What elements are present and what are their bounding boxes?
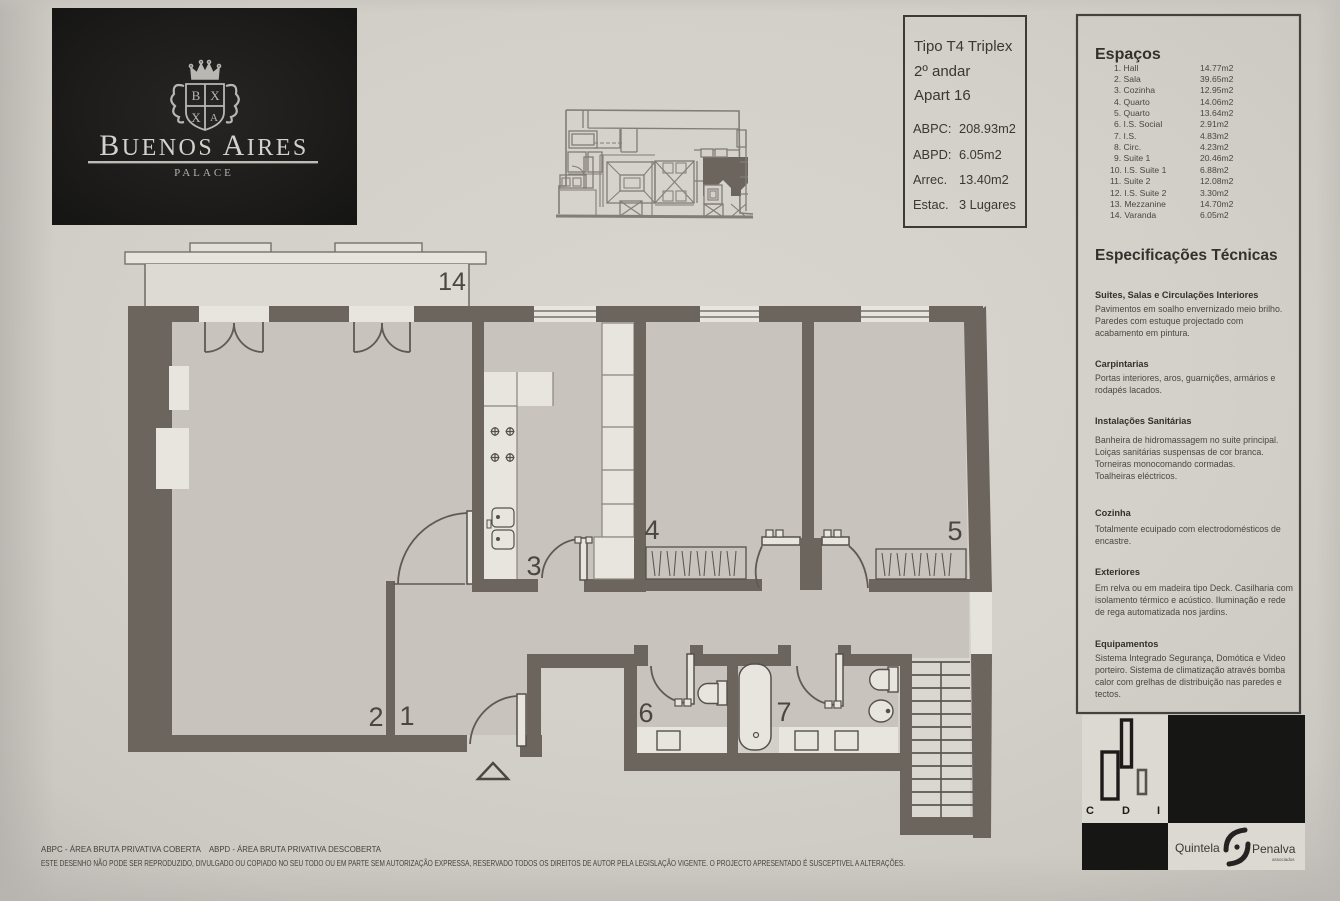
svg-text:ESTE DESENHO NÃO PODE SER REPR: ESTE DESENHO NÃO PODE SER REPRODUZIDO, D… (41, 859, 905, 868)
svg-text:Cozinha: Cozinha (1095, 508, 1132, 518)
svg-text:12. I.S. Suite 2: 12. I.S. Suite 2 (1110, 188, 1167, 198)
svg-text:Instalações Sanitárias: Instalações Sanitárias (1095, 416, 1192, 426)
svg-text:14.77m2: 14.77m2 (1200, 63, 1234, 73)
svg-text:X: X (210, 88, 220, 103)
svg-text:Carpintarias: Carpintarias (1095, 359, 1149, 369)
svg-text:14. Varanda: 14. Varanda (1110, 210, 1156, 220)
svg-text:Equipamentos: Equipamentos (1095, 639, 1158, 649)
svg-text:14: 14 (438, 268, 466, 296)
svg-text:Arrec.: Arrec. (913, 172, 947, 187)
svg-text:Toalheiras eléctricos.: Toalheiras eléctricos. (1095, 471, 1177, 481)
svg-text:4.83m2: 4.83m2 (1200, 131, 1229, 141)
svg-text:calor com grelhas de distribui: calor com grelhas de distribuição nas pa… (1095, 677, 1282, 687)
svg-text:Loiças sanitárias suspensas de: Loiças sanitárias suspensas de cor branc… (1095, 447, 1264, 457)
svg-text:encastre.: encastre. (1095, 536, 1131, 546)
svg-text:13. Mezzanine: 13. Mezzanine (1110, 199, 1166, 209)
svg-text:6: 6 (638, 698, 653, 728)
svg-text:13.40m2: 13.40m2 (959, 172, 1009, 187)
svg-text:Portas interiores, aros, guarn: Portas interiores, aros, guarnições, arm… (1095, 373, 1276, 383)
svg-text:2.91m2: 2.91m2 (1200, 119, 1229, 129)
svg-text:Espaços: Espaços (1095, 46, 1161, 63)
svg-text:tectos.: tectos. (1095, 689, 1121, 699)
svg-text:ABPD - ÁREA BRUTA PRIVATIVA DE: ABPD - ÁREA BRUTA PRIVATIVA DESCOBERTA (209, 845, 382, 854)
svg-text:Exteriores: Exteriores (1095, 567, 1140, 577)
svg-text:Tipo T4 Triplex: Tipo T4 Triplex (914, 38, 1013, 55)
svg-text:14.06m2: 14.06m2 (1200, 97, 1234, 107)
svg-text:6.05m2: 6.05m2 (959, 147, 1002, 162)
svg-text:PALACE: PALACE (174, 167, 234, 179)
svg-text:9. Suite 1: 9. Suite 1 (1114, 153, 1151, 163)
svg-text:6. I.S. Social: 6. I.S. Social (1114, 119, 1162, 129)
svg-text:Sistema Integrado Segurança, D: Sistema Integrado Segurança, Domótica e … (1095, 653, 1286, 663)
svg-text:6.05m2: 6.05m2 (1200, 210, 1229, 220)
svg-text:13.64m2: 13.64m2 (1200, 108, 1234, 118)
svg-text:208.93m2: 208.93m2 (959, 121, 1016, 136)
svg-text:Especificações Técnicas: Especificações Técnicas (1095, 247, 1278, 264)
svg-text:1. Hall: 1. Hall (1114, 63, 1138, 73)
svg-text:de rega automatizada nos jardi: de rega automatizada nos jardins. (1095, 607, 1228, 617)
svg-text:1: 1 (399, 701, 414, 731)
svg-text:11. Suite 2: 11. Suite 2 (1110, 176, 1151, 186)
svg-text:4.23m2: 4.23m2 (1200, 142, 1229, 152)
svg-text:rodapés lacados.: rodapés lacados. (1095, 385, 1162, 395)
svg-text:8. Circ.: 8. Circ. (1114, 142, 1141, 152)
svg-text:C: C (1086, 805, 1094, 817)
svg-text:X: X (191, 110, 201, 125)
svg-text:Totalmente ecuipado com electr: Totalmente ecuipado com electrodoméstico… (1095, 524, 1281, 534)
svg-text:isolamento térmico e acústico.: isolamento térmico e acústico. Iluminaçã… (1095, 595, 1286, 605)
svg-text:3 Lugares: 3 Lugares (959, 197, 1016, 212)
svg-text:Torneiras monocomando cormadas: Torneiras monocomando cormadas. (1095, 459, 1235, 469)
svg-text:5: 5 (947, 516, 962, 546)
svg-text:Banheira de hidromassagem no: Banheira de hidromassagem no suite princ… (1095, 435, 1278, 445)
svg-text:3: 3 (526, 551, 541, 581)
svg-text:acabamento em pintura.: acabamento em pintura. (1095, 328, 1190, 338)
svg-text:Pavimentos em soalho enverniza: Pavimentos em soalho envernizado meio br… (1095, 304, 1282, 314)
svg-text:Suites, Salas e Circulações In: Suites, Salas e Circulações Interiores (1095, 290, 1258, 300)
svg-text:associados: associados (1272, 857, 1295, 862)
svg-text:ABPC:: ABPC: (913, 121, 951, 136)
svg-text:porteiro. Sistema de climatiza: porteiro. Sistema de climatização atravé… (1095, 665, 1285, 675)
svg-text:A: A (210, 112, 218, 124)
svg-text:Apart 16: Apart 16 (914, 87, 971, 104)
svg-text:Em relva ou em madeira tipo De: Em relva ou em madeira tipo Deck. Casilh… (1095, 583, 1293, 593)
svg-text:Penalva: Penalva (1252, 842, 1296, 856)
svg-text:4: 4 (644, 515, 659, 545)
svg-text:D: D (1122, 805, 1130, 817)
svg-text:14.70m2: 14.70m2 (1200, 199, 1234, 209)
svg-text:Quintela: Quintela (1175, 841, 1220, 855)
svg-text:I: I (1157, 805, 1160, 817)
svg-text:12.08m2: 12.08m2 (1200, 176, 1234, 186)
svg-text:2. Sala: 2. Sala (1114, 74, 1141, 84)
svg-text:Estac.: Estac. (913, 197, 949, 212)
svg-text:ABPC - ÁREA BRUTA PRIVATIVA CO: ABPC - ÁREA BRUTA PRIVATIVA COBERTA (41, 845, 202, 854)
svg-text:B: B (192, 88, 201, 103)
svg-text:5. Quarto: 5. Quarto (1114, 108, 1150, 118)
svg-text:6.88m2: 6.88m2 (1200, 165, 1229, 175)
svg-text:2º andar: 2º andar (914, 63, 970, 80)
svg-text:3.30m2: 3.30m2 (1200, 188, 1229, 198)
svg-text:ABPD:: ABPD: (913, 147, 951, 162)
svg-text:4. Quarto: 4. Quarto (1114, 97, 1150, 107)
svg-text:20.46m2: 20.46m2 (1200, 153, 1234, 163)
svg-text:3. Cozinha: 3. Cozinha (1114, 85, 1155, 95)
svg-text:2: 2 (368, 702, 383, 732)
svg-text:7: 7 (776, 697, 791, 727)
svg-text:7. I.S.: 7. I.S. (1114, 131, 1136, 141)
svg-text:Paredes com estuque projectado: Paredes com estuque projectado com (1095, 316, 1243, 326)
svg-text:39.65m2: 39.65m2 (1200, 74, 1234, 84)
svg-text:10. I.S. Suite 1: 10. I.S. Suite 1 (1110, 165, 1167, 175)
svg-text:12.95m2: 12.95m2 (1200, 85, 1234, 95)
